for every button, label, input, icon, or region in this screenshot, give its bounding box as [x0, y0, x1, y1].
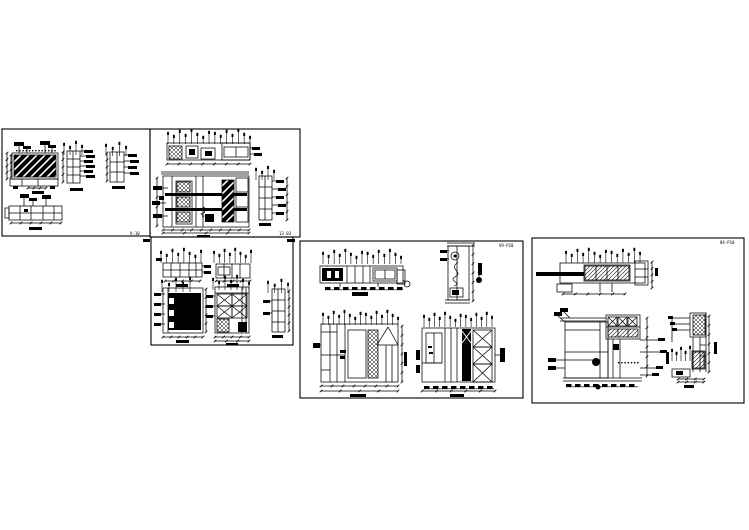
cad-viewer-canvas: V-1013.03V9-P1084-P10 [0, 0, 749, 530]
sheet-label: V-10 [130, 231, 140, 236]
sheet-label: 13.03 [279, 231, 292, 236]
sheet-label: V9-P10 [499, 243, 514, 248]
cad-multi-sheet-drawing: V-1013.03V9-P1084-P10 [0, 0, 749, 530]
sheet-label: 84-P10 [720, 240, 735, 245]
